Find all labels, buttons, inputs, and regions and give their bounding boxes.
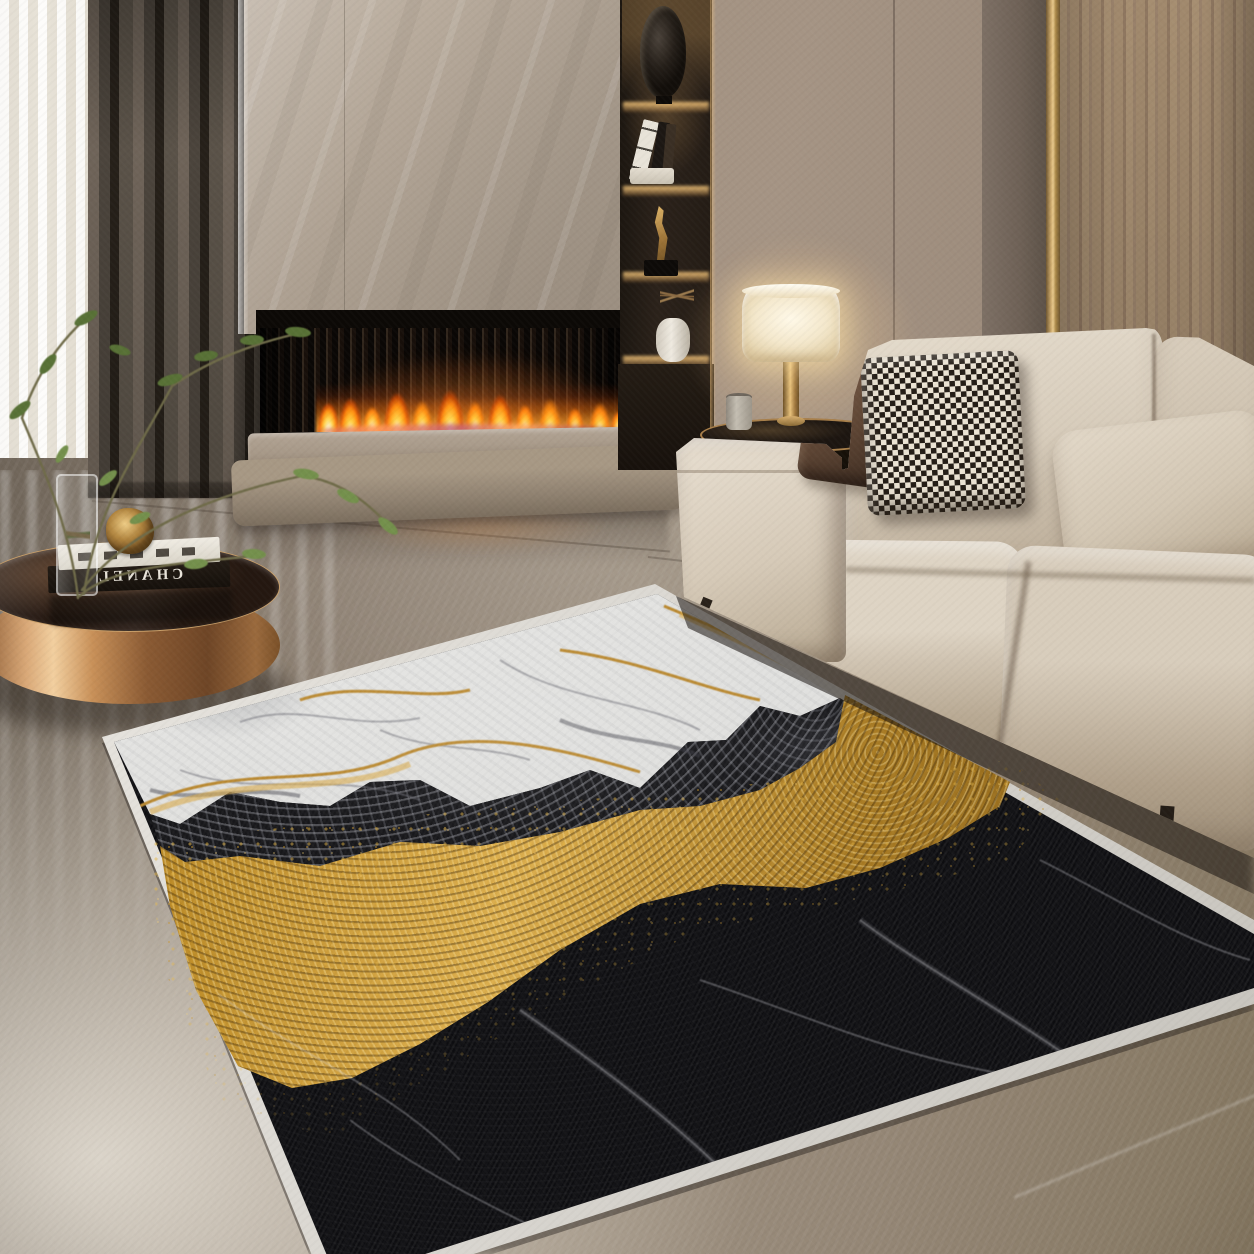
lamp-brass-stem [783,358,799,422]
lamp-shade [742,288,840,362]
shelf-tray [630,168,674,184]
glass-sculpture [640,6,686,98]
sculpture-stand [656,96,672,104]
niche-shelf-light [623,186,709,196]
living-room-scene: CHANEL [0,0,1254,1254]
cup [726,396,752,430]
houndstooth-pillow [860,350,1026,516]
plant-branches [0,268,430,608]
lamp-base [777,416,805,426]
lamp-shade-rim [742,284,840,298]
